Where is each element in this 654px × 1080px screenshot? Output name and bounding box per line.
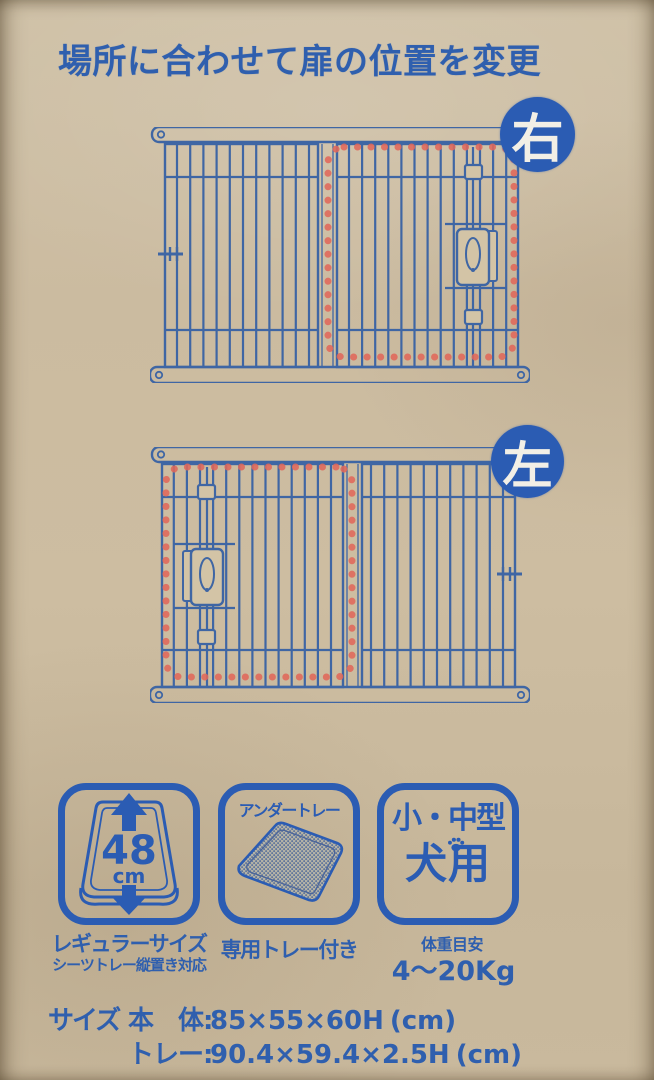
weight-guide-value: 4〜20Kg — [371, 949, 536, 988]
badge-right-label: 右 — [511, 97, 563, 172]
size-label: サイズ — [48, 1000, 128, 1037]
arrow-up-icon — [111, 793, 147, 831]
paw-print-icon — [447, 836, 465, 852]
body-size-name: 本 体: — [128, 1000, 210, 1037]
under-tray-icon: アンダートレー — [218, 783, 360, 925]
cage-diagram-door-left — [150, 447, 530, 703]
door-position-badge-left: 左 — [491, 425, 564, 498]
height-48cm-icon: 48 cm — [58, 783, 200, 925]
size-row-tray: トレー: 90.4×59.4×2.5H (cm) — [48, 1034, 628, 1068]
tray-size-value: 90.4×59.4×2.5H — [210, 1040, 450, 1070]
headline: 場所に合わせて扉の位置を変更 — [58, 34, 618, 83]
dog-size-line1: 小・中型 — [384, 804, 512, 834]
under-tray-label: アンダートレー — [225, 797, 353, 821]
badge-left-label: 左 — [503, 426, 553, 498]
body-size-unit: (cm) — [390, 1006, 456, 1036]
dedicated-tray-caption: 専用トレー付き — [189, 934, 389, 964]
tray-size-name: トレー: — [128, 1034, 210, 1071]
height-unit: cm — [113, 864, 146, 888]
size-table: サイズ 本 体: 85×55×60H (cm) トレー: 90.4×59.4×2… — [48, 1000, 628, 1068]
dog-size-icon: 小・中型 犬用 — [377, 783, 519, 925]
package-front-panel: 場所に合わせて扉の位置を変更 右 左 48 cm — [0, 0, 654, 1080]
tray-size-unit: (cm) — [456, 1040, 522, 1070]
door-position-badge-right: 右 — [500, 97, 575, 172]
height-arrow-tray-icon: 48 cm — [65, 790, 193, 918]
cage-diagram-door-right — [150, 127, 530, 383]
size-row-body: サイズ 本 体: 85×55×60H (cm) — [48, 1000, 628, 1034]
body-size-value: 85×55×60H — [210, 1006, 384, 1036]
